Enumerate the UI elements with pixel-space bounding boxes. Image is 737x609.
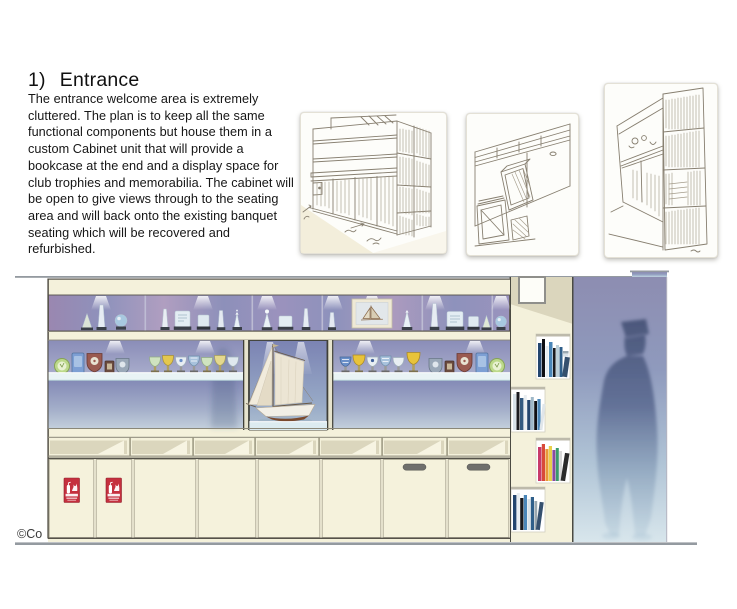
display-post bbox=[327, 340, 333, 430]
glass-shelf bbox=[333, 373, 510, 381]
door-handle bbox=[467, 464, 490, 470]
pigeonhole-cells bbox=[50, 441, 508, 455]
book-niche-2 bbox=[511, 387, 546, 432]
shield bbox=[457, 354, 472, 373]
body-paragraph: The entrance welcome area is extremely c… bbox=[28, 91, 301, 258]
fire-extinguisher-sign bbox=[64, 478, 80, 503]
door-handle bbox=[403, 464, 426, 470]
middle-display-row bbox=[48, 340, 510, 430]
cupboard-door bbox=[258, 460, 320, 538]
page-title: 1) Entrance bbox=[28, 69, 139, 92]
cabinet-unit bbox=[47, 279, 511, 543]
pigeonhole-cell bbox=[132, 441, 190, 455]
cupboard-doors bbox=[48, 458, 510, 539]
plaque bbox=[476, 353, 488, 374]
crystal-award bbox=[467, 317, 479, 330]
floor-line bbox=[15, 542, 697, 545]
page-title-number: 1) bbox=[28, 69, 46, 92]
top-display-row bbox=[49, 295, 512, 331]
display-post bbox=[243, 340, 249, 430]
bookcase-end-panel bbox=[510, 277, 574, 542]
cabinet-elevation-drawing bbox=[15, 268, 705, 553]
cupboard-door bbox=[383, 460, 446, 538]
sketch-tiltout-bin bbox=[467, 114, 578, 255]
fire-extinguisher-sign bbox=[106, 478, 122, 503]
trophy-shelf-right bbox=[333, 341, 510, 429]
plaque bbox=[445, 361, 454, 374]
crystal-award bbox=[197, 315, 211, 330]
book-niche-1 bbox=[536, 334, 570, 379]
sketch-bookcase-end bbox=[605, 84, 717, 257]
medal bbox=[55, 359, 70, 374]
book-niche-3 bbox=[536, 438, 570, 483]
design-document-page: 1) Entrance The entrance welcome area is… bbox=[0, 0, 737, 609]
crystal-award bbox=[446, 312, 465, 331]
cupboard-door bbox=[198, 460, 256, 538]
pigeonhole-cell bbox=[384, 441, 444, 455]
trophy-shelf-left bbox=[49, 341, 244, 429]
crystal-award bbox=[174, 311, 192, 330]
glass-shelf bbox=[49, 373, 244, 381]
medal bbox=[490, 359, 505, 374]
sailboat-display bbox=[246, 341, 327, 431]
sketch-cabinet-overview-thumbnail bbox=[300, 112, 447, 254]
page-title-text: Entrance bbox=[60, 69, 140, 92]
shield bbox=[87, 354, 102, 373]
silhouette-panel bbox=[573, 271, 669, 543]
sketch-cabinet-overview bbox=[301, 113, 446, 253]
shield bbox=[116, 359, 129, 375]
crystal-award bbox=[496, 316, 507, 330]
shield bbox=[429, 359, 442, 375]
panel-notch bbox=[519, 277, 545, 303]
pigeonhole-cell bbox=[50, 441, 127, 455]
cupboard-door bbox=[322, 460, 381, 538]
pigeonhole-cell bbox=[449, 441, 508, 455]
cupboard-door bbox=[448, 460, 509, 538]
pigeonhole-cell bbox=[195, 441, 252, 455]
cupboard-door bbox=[134, 460, 196, 538]
sketch-bookcase-end-thumbnail bbox=[604, 83, 718, 258]
pigeonhole-cell bbox=[257, 441, 316, 455]
pigeonhole-cell bbox=[321, 441, 379, 455]
sketch-tiltout-bin-thumbnail bbox=[466, 113, 579, 256]
book-niche-4 bbox=[511, 487, 545, 532]
plaque bbox=[105, 361, 114, 374]
crystal-award bbox=[115, 315, 127, 330]
plaque bbox=[72, 353, 84, 374]
framed-picture bbox=[352, 299, 392, 328]
crystal-award bbox=[278, 316, 294, 330]
